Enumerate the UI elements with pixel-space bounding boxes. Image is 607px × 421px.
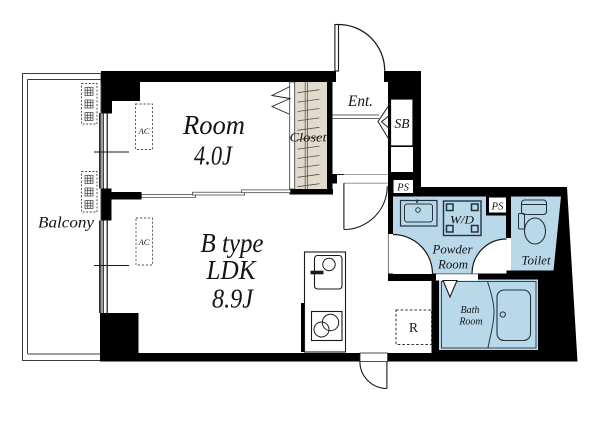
svg-text:Room: Room: [437, 258, 468, 272]
svg-text:Room: Room: [458, 317, 482, 328]
svg-text:LDK: LDK: [206, 255, 258, 285]
svg-text:Powder: Powder: [431, 243, 472, 257]
svg-text:AC: AC: [138, 237, 150, 247]
svg-text:SB: SB: [395, 116, 410, 131]
svg-text:PS: PS: [396, 183, 409, 194]
svg-text:Room: Room: [182, 110, 245, 140]
svg-text:Balcony: Balcony: [38, 215, 95, 232]
svg-text:B type: B type: [201, 228, 264, 258]
svg-text:Closet: Closet: [290, 130, 327, 145]
svg-text:W/D: W/D: [450, 213, 474, 227]
svg-text:4.0J: 4.0J: [194, 141, 234, 171]
svg-text:AC: AC: [138, 126, 150, 136]
svg-text:PS: PS: [491, 202, 504, 213]
svg-text:8.9J: 8.9J: [212, 284, 255, 314]
svg-text:Toilet: Toilet: [521, 253, 551, 268]
svg-text:R: R: [409, 320, 418, 335]
svg-text:Bath: Bath: [461, 305, 480, 316]
svg-text:Ent.: Ent.: [347, 93, 373, 110]
